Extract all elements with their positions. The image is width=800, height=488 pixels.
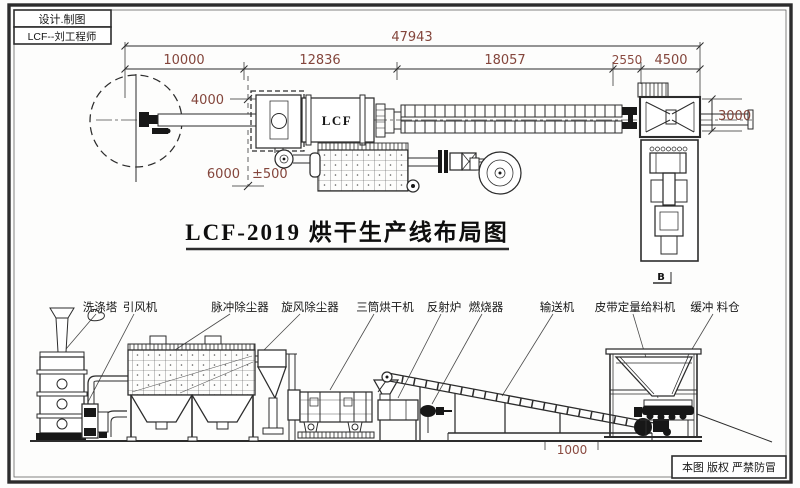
engineer-label: LCF--刘工程师	[28, 30, 97, 43]
label-washing-tower: 洗涤塔	[83, 300, 118, 314]
hopper-height-dim: 3000	[702, 96, 751, 135]
id-fan	[82, 376, 128, 438]
dim-height-lower: 6000	[207, 167, 240, 182]
inclined-conveyor	[378, 372, 671, 441]
title-block: 设计.制图 LCF--刘工程师	[14, 10, 111, 44]
section-marker-letter: B	[657, 272, 665, 283]
label-cyclone: 旋风除尘器	[281, 300, 339, 314]
section-marker: B	[653, 272, 671, 284]
label-drum-dryer: 三筒烘干机	[356, 300, 414, 314]
loader-bay-plan	[641, 140, 698, 261]
dim-segment-5: 4500	[654, 53, 687, 68]
pulse-collector-plan	[310, 143, 419, 192]
label-buffer-silo: 缓冲 料仓	[690, 300, 740, 314]
cad-drawing-page: 设计.制图 LCF--刘工程师 47943 10000 12836 18057 …	[0, 0, 800, 488]
copyright-text: 本图 版权 严禁防冒	[682, 460, 776, 474]
furnace	[378, 400, 418, 440]
pulse-dust-collector	[127, 336, 258, 441]
belt-conveyor-plan-lower	[401, 121, 622, 133]
equipment-labels: 洗涤塔 引风机 脉冲除尘器 旋风除尘器 三筒烘干机 反射炉 燃烧器 输送机 皮带…	[83, 300, 740, 314]
label-conveyor: 输送机	[540, 300, 575, 314]
drawing-title: LCF-2019 烘干生产线布局图	[185, 219, 509, 249]
fan-plan	[470, 152, 521, 194]
label-burner: 燃烧器	[469, 300, 504, 314]
tail-drive-pulley	[634, 418, 652, 436]
label-furnace: 反射炉	[427, 300, 462, 314]
dim-segment-2: 12836	[299, 53, 340, 68]
dim-overall: 47943	[391, 30, 432, 45]
dim-segment-4: 2550	[612, 53, 643, 67]
ramp-line	[697, 414, 772, 442]
feed-shaft	[158, 114, 256, 126]
elevation-view: 洗涤塔 引风机 脉冲除尘器 旋风除尘器 三筒烘干机 反射炉 燃烧器 输送机 皮带…	[30, 300, 772, 457]
dim-hopper-height: 3000	[718, 109, 751, 124]
dim-segment-3: 18057	[484, 53, 525, 68]
feed-head-box	[256, 95, 301, 148]
dimension-chain: 47943 10000 12836 18057 2550 4500	[122, 30, 704, 98]
belt-conveyor-plan-upper	[401, 105, 622, 117]
label-belt-feeder: 皮带定量给料机	[595, 300, 676, 314]
dryer-plan: LCF	[302, 95, 374, 145]
dim-height-upper: 4000	[191, 93, 224, 108]
gearbox-plan	[376, 104, 401, 137]
dim-tolerance: ±500	[252, 167, 288, 182]
dim-segment-1: 10000	[163, 53, 204, 68]
designer-label: 设计.制图	[38, 13, 85, 26]
label-pulse-collector: 脉冲除尘器	[211, 300, 269, 314]
label-id-fan: 引风机	[123, 300, 158, 314]
plan-view: LCF	[90, 74, 753, 284]
dryer-plan-label: LCF	[322, 113, 353, 128]
copyright-box: 本图 版权 严禁防冒	[672, 456, 786, 478]
dim-platform-offset: 1000	[557, 443, 588, 457]
burner	[420, 405, 452, 433]
drawing-canvas: 设计.制图 LCF--刘工程师 47943 10000 12836 18057 …	[0, 0, 800, 488]
grating-plan	[638, 83, 668, 97]
drawing-title-text: LCF-2019 烘干生产线布局图	[185, 219, 508, 245]
head-connector	[622, 107, 637, 129]
